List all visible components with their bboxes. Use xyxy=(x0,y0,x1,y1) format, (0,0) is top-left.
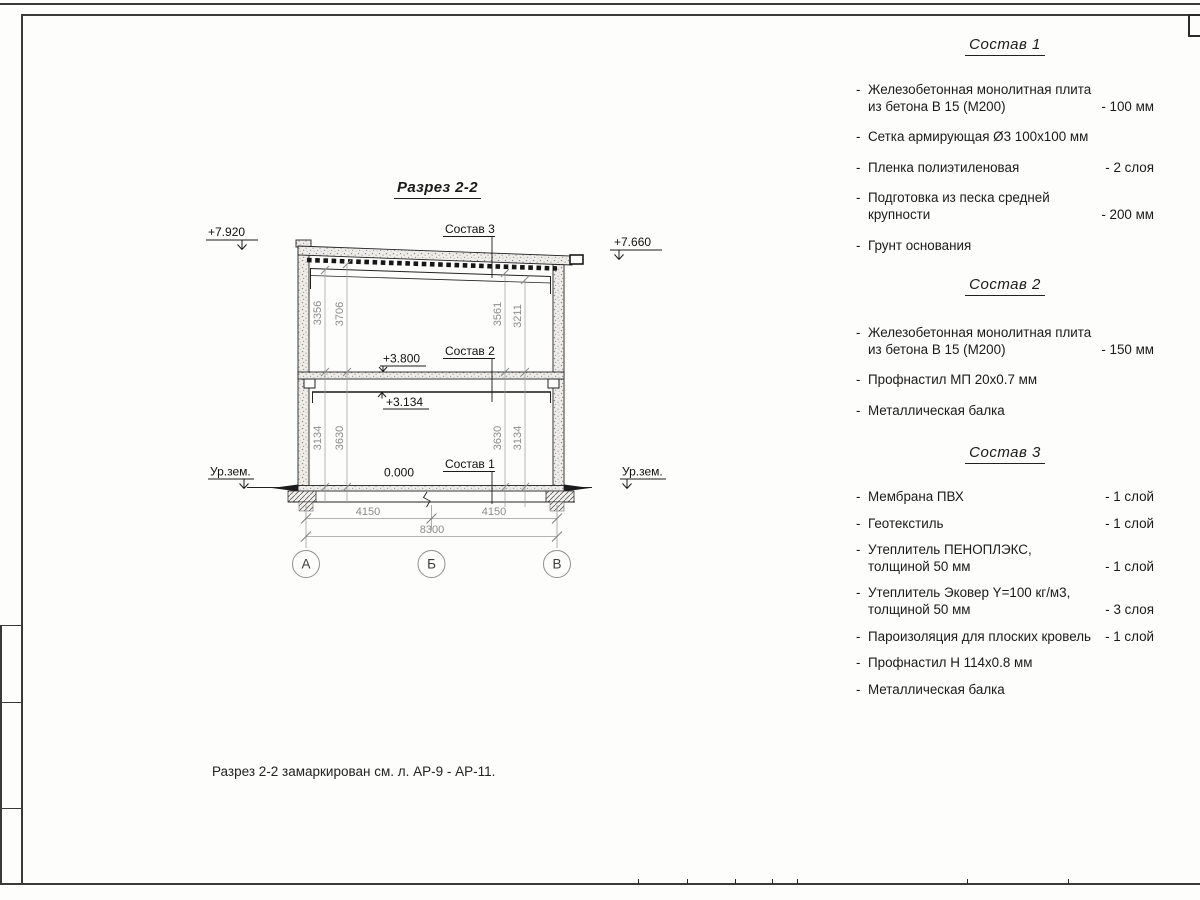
vertical-dimensions xyxy=(321,260,529,507)
item-bullet: - xyxy=(856,585,868,618)
frame-left xyxy=(21,14,23,884)
spec-item: - Геотекстиль - 1 слой xyxy=(856,516,1154,533)
item-name: Пароизоляция для плоских кровель xyxy=(868,629,1091,646)
item-bullet: - xyxy=(856,190,868,223)
spec-item: - Подготовка из песка средней крупности … xyxy=(856,190,1154,223)
dim-3706: 3706 xyxy=(334,302,346,326)
spec-item: - Пароизоляция для плоских кровель - 1 с… xyxy=(856,629,1154,646)
item-name: Подготовка из песка средней крупности xyxy=(868,190,1092,223)
spec-item: - Утеплитель Эковер Y=100 кг/м3, толщино… xyxy=(856,585,1154,618)
item-name: Утеплитель Эковер Y=100 кг/м3, толщиной … xyxy=(868,585,1092,618)
item-name: Профнастил Н 114х0.8 мм xyxy=(868,655,1032,672)
item-name: Пленка полиэтиленовая xyxy=(868,160,1019,177)
item-value: - 200 мм xyxy=(1095,207,1154,224)
break-symbol xyxy=(424,492,431,507)
axis-label-b: Б xyxy=(427,557,436,572)
sheet-top-edge xyxy=(0,3,1200,5)
item-value: - 1 слой xyxy=(1099,516,1154,533)
ground-wing-left xyxy=(272,485,298,492)
spec-item: - Мембрана ПВХ - 1 слой xyxy=(856,489,1154,506)
spec-item: - Профнастил МП 20х0.7 мм xyxy=(856,372,1154,389)
dim-4150-right: 4150 xyxy=(482,506,506,518)
spec-section-sostav3: Состав 3 - Мембрана ПВХ - 1 слой - Геоте… xyxy=(856,444,1154,708)
elevation-floor2: +3.800 xyxy=(383,352,420,366)
frame-corner-box xyxy=(1188,14,1200,37)
item-bullet: - xyxy=(856,325,868,358)
item-bullet: - xyxy=(856,82,868,115)
dim-3356: 3356 xyxy=(312,301,324,325)
dim-3630-r: 3630 xyxy=(492,426,504,450)
item-name: Геотекстиль xyxy=(868,516,944,533)
item-bullet: - xyxy=(856,489,868,506)
footnote: Разрез 2-2 замаркирован см. л. АР-9 - АР… xyxy=(212,764,495,779)
item-bullet: - xyxy=(856,160,868,177)
margin-column-divider xyxy=(0,808,22,809)
margin-column-divider xyxy=(0,702,22,703)
middle-floor-group xyxy=(298,372,564,403)
elevation-roof-right: +7.660 xyxy=(614,235,651,249)
item-value: - 1 слой xyxy=(1099,629,1154,646)
item-bullet: - xyxy=(856,542,868,575)
item-bullet: - xyxy=(856,372,868,389)
elevation-beam: +3.134 xyxy=(386,395,423,409)
dim-3134-r: 3134 xyxy=(512,426,524,450)
spec-heading: Состав 2 xyxy=(965,276,1045,296)
item-name: Профнастил МП 20х0.7 мм xyxy=(868,372,1037,389)
leader-label-sostav2: Состав 2 xyxy=(445,344,495,358)
leader-label-sostav3: Состав 3 xyxy=(445,222,495,236)
item-name: Железобетонная монолитная плита из бетон… xyxy=(868,82,1092,115)
ground-floor-group xyxy=(247,485,592,512)
walls-group xyxy=(296,240,564,491)
item-value: - 150 мм xyxy=(1095,342,1154,359)
dim-8300: 8300 xyxy=(420,524,444,536)
axis-label-a: А xyxy=(301,557,310,572)
elevation-zero: 0.000 xyxy=(384,466,414,480)
titleblock-tick xyxy=(967,879,968,884)
spec-item: - Металлическая балка xyxy=(856,682,1154,699)
spec-item: - Железобетонная монолитная плита из бет… xyxy=(856,325,1154,358)
dim-3561: 3561 xyxy=(492,302,504,326)
item-name: Мембрана ПВХ xyxy=(868,489,964,506)
spec-item: - Утеплитель ПЕНОПЛЭКС, толщиной 50 мм -… xyxy=(856,542,1154,575)
item-bullet: - xyxy=(856,403,868,420)
spec-item: - Железобетонная монолитная плита из бет… xyxy=(856,82,1154,115)
elevation-roof-left: +7.920 xyxy=(208,225,245,239)
spec-item: - Сетка армирующая Ø3 100х100 мм xyxy=(856,129,1154,146)
item-value: - 1 слой xyxy=(1099,559,1154,576)
ground-wing-right xyxy=(564,485,590,492)
dim-3630-l: 3630 xyxy=(334,426,346,450)
roof-group xyxy=(298,246,583,294)
item-bullet: - xyxy=(856,682,868,699)
titleblock-tick xyxy=(735,879,736,884)
frame-bottom xyxy=(0,883,1200,885)
section-drawing: 3356 3706 3561 3211 3134 3630 3630 3134 … xyxy=(180,160,670,605)
item-bullet: - xyxy=(856,629,868,646)
item-value: - 1 слой xyxy=(1099,489,1154,506)
item-value: - 100 мм xyxy=(1095,99,1154,116)
spec-item: - Профнастил Н 114х0.8 мм xyxy=(856,655,1154,672)
spec-section-sostav1: Состав 1 - Железобетонная монолитная пли… xyxy=(856,36,1154,268)
dim-3211: 3211 xyxy=(512,304,524,328)
item-bullet: - xyxy=(856,516,868,533)
spec-heading: Состав 3 xyxy=(965,444,1045,464)
spec-item: - Пленка полиэтиленовая - 2 слоя xyxy=(856,160,1154,177)
item-value: - 2 слоя xyxy=(1099,160,1154,177)
foundation-left xyxy=(288,491,316,502)
margin-column-edge xyxy=(0,625,2,884)
item-bullet: - xyxy=(856,238,868,255)
item-value: - 3 слоя xyxy=(1099,602,1154,619)
item-name: Сетка армирующая Ø3 100х100 мм xyxy=(868,129,1088,146)
item-bullet: - xyxy=(856,129,868,146)
drawing-sheet: Разрез 2-2 xyxy=(0,0,1200,900)
titleblock-tick xyxy=(772,879,773,884)
frame-top xyxy=(21,14,1200,16)
spec-section-sostav2: Состав 2 - Железобетонная монолитная пли… xyxy=(856,276,1154,433)
item-name: Утеплитель ПЕНОПЛЭКС, толщиной 50 мм xyxy=(868,542,1092,575)
dim-4150-left: 4150 xyxy=(356,506,380,518)
ground-label-right: Ур.зем. xyxy=(622,465,663,479)
elevation-marks xyxy=(206,240,666,489)
spec-item: - Грунт основания xyxy=(856,238,1154,255)
item-name: Грунт основания xyxy=(868,238,971,255)
item-bullet: - xyxy=(856,655,868,672)
dim-3134-l: 3134 xyxy=(312,426,324,450)
item-name: Металлическая балка xyxy=(868,682,1005,699)
ground-label-left: Ур.зем. xyxy=(210,465,251,479)
titleblock-tick xyxy=(1068,879,1069,884)
leader-label-sostav1: Состав 1 xyxy=(445,457,495,471)
roof-end-cap xyxy=(570,255,583,264)
spec-heading: Состав 1 xyxy=(965,36,1045,56)
titleblock-tick xyxy=(638,879,639,884)
titleblock-tick xyxy=(797,879,798,884)
titleblock-tick xyxy=(687,879,688,884)
margin-column-divider xyxy=(0,625,22,626)
axis-label-v: В xyxy=(552,557,561,572)
item-name: Металлическая балка xyxy=(868,403,1005,420)
item-name: Железобетонная монолитная плита из бетон… xyxy=(868,325,1092,358)
spec-item: - Металлическая балка xyxy=(856,403,1154,420)
foundation-right xyxy=(546,491,574,502)
